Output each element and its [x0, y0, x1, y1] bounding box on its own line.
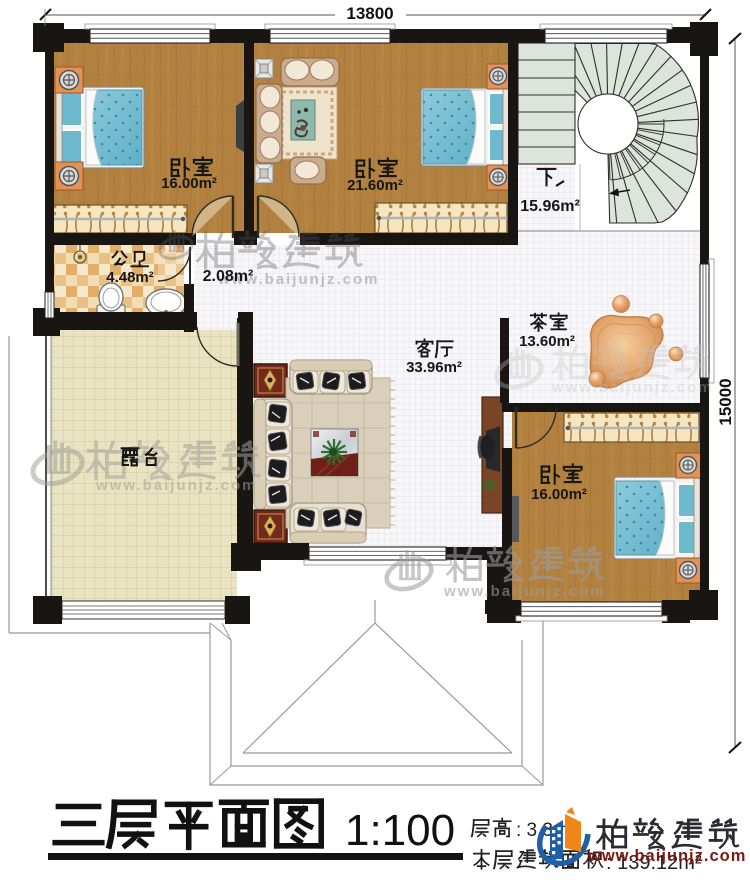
- svg-text:13800: 13800: [346, 4, 393, 23]
- svg-text:www.baijunjz.com: www.baijunjz.com: [443, 583, 605, 600]
- svg-text:33.96m²: 33.96m²: [406, 359, 462, 376]
- svg-text:www.baijunjz.com: www.baijunjz.com: [95, 477, 257, 494]
- svg-text:2.08m²: 2.08m²: [203, 268, 254, 285]
- svg-text:www.baijunjz.com: www.baijunjz.com: [551, 379, 713, 396]
- svg-text:1:100: 1:100: [345, 806, 455, 855]
- svg-text:www.baijunjz.com: www.baijunjz.com: [587, 847, 746, 865]
- svg-text:4.48m²: 4.48m²: [106, 269, 154, 286]
- svg-text:13.60m²: 13.60m²: [519, 333, 575, 350]
- svg-text:15000: 15000: [716, 378, 735, 425]
- svg-text:21.60m²: 21.60m²: [347, 177, 403, 194]
- svg-text:16.00m²: 16.00m²: [161, 175, 217, 192]
- svg-text:15.96m²: 15.96m²: [520, 198, 580, 215]
- svg-text:16.00m²: 16.00m²: [531, 486, 587, 503]
